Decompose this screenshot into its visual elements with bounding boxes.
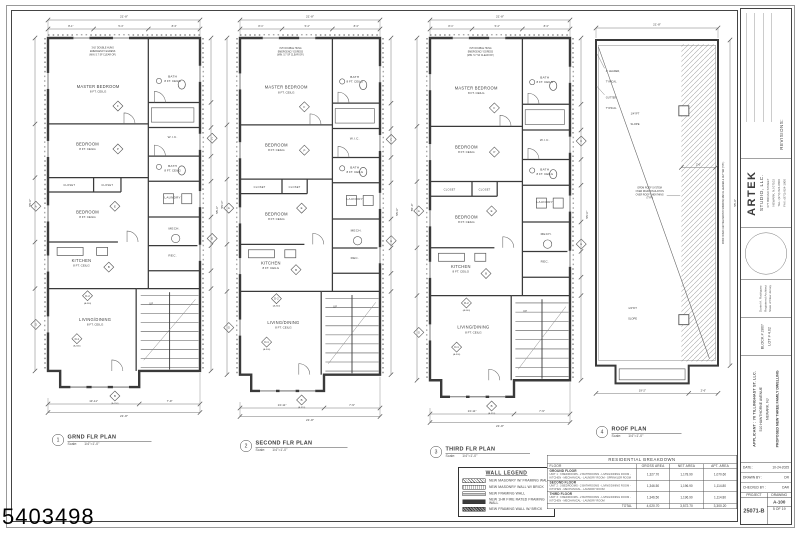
exterior-wall	[240, 38, 380, 391]
tag-letter: D-1	[454, 345, 459, 349]
dim-label: 13'-11"	[89, 399, 98, 403]
room-label: REC.	[541, 259, 549, 263]
room-label: BEDROOM	[265, 211, 288, 216]
egress-note: (MIN. 5.7 SF CLEAR OP.)	[467, 54, 494, 57]
room-label: BEDROOM	[76, 141, 99, 146]
room-label: BEDROOM	[455, 214, 478, 219]
dim-label: 55'-0"	[410, 203, 414, 211]
plan-title-grnd: 1 GRND FLR PLAN Scale:1/4"=1'-0"	[52, 434, 151, 446]
room-ceiling-note: 8 FT. CEILG	[73, 263, 90, 267]
tag-letter: P	[117, 147, 119, 151]
tag-letter: E	[390, 239, 392, 243]
leader-note: 4" LEADER,	[606, 69, 620, 73]
room-ceiling-note: 8 FT. CEILG	[537, 80, 554, 84]
tag-ref: (A-300)	[453, 353, 461, 356]
plan-number-badge: 3	[430, 446, 442, 458]
tag-letter: B	[295, 268, 297, 272]
dim-label: 5'-4"	[495, 24, 500, 28]
dim-label: 8'-1"	[448, 24, 453, 28]
room-label: BATH	[168, 164, 177, 168]
dim-label: 55'-0"	[395, 208, 399, 216]
firm-name-2: STUDIO, LLC.	[760, 175, 765, 212]
room-ceiling-note: 8 FT. CEILG	[458, 220, 475, 224]
tag-letter: B	[491, 404, 493, 408]
plan-number-badge: 4	[596, 426, 608, 438]
dim-label: 8'-3"	[172, 24, 177, 28]
egress-note: EMERGENCY EGRESS	[278, 51, 304, 53]
tag-letter: B	[108, 265, 110, 269]
plan-title-text: GRND FLR PLAN	[68, 434, 152, 442]
meta-label: CHECKED BY :	[743, 486, 766, 490]
plan-number-badge: 1	[52, 434, 64, 446]
tag-ref: (A-310)	[298, 406, 306, 409]
meta-label: DRAWN BY :	[743, 476, 762, 480]
room-ceiling-note: 8 FT. CEILG	[87, 322, 104, 326]
room-label: CLOSET	[254, 185, 266, 189]
room-label: MASTER BEDROOM	[455, 86, 498, 91]
dim-label: 21'-8"	[120, 414, 128, 418]
legend-item-label: NEW FRAMING WALL	[489, 492, 525, 496]
room-ceiling-note: 8 FT. CEILG	[468, 91, 485, 95]
room-label: LIVING/DINING	[79, 317, 111, 322]
legend-item: NEW MASONRY W/ FRAMING WALL	[463, 479, 551, 484]
firm-name: ARTEK	[745, 170, 758, 215]
applicant-address: 510 HAWTHORNE AVENUE	[759, 387, 763, 432]
roof-note: EPDM ROOF SYSTEM	[638, 188, 662, 190]
tag-letter: D-2	[85, 294, 90, 298]
dim-label: 8'-1"	[68, 24, 73, 28]
leader-note: TYPICAL	[606, 79, 617, 83]
dim-label: 19'-2"	[639, 388, 646, 392]
room-ceiling-note: 8 FT. CEILG	[164, 79, 181, 83]
tag-letter: D-2	[464, 301, 469, 305]
slope-label: SLOPE	[628, 317, 637, 321]
firm-phone: TEL: (973) 824-0800	[778, 179, 781, 207]
slope-label: 1/4"/FT	[628, 306, 637, 310]
firm-address: 677 BROAD STREET	[767, 178, 770, 207]
room-label: MECH.	[351, 229, 362, 233]
tag-letter: E	[491, 209, 493, 213]
plan-number-badge: 2	[240, 440, 252, 452]
drawing-number: A-100	[767, 498, 791, 507]
dim-label: 2'-6"	[701, 388, 707, 392]
wall-type-swatch	[463, 499, 486, 504]
tag-letter: A	[418, 209, 420, 213]
dim-label: 21'-8"	[496, 15, 504, 19]
room-label: REC.	[351, 256, 359, 260]
room-label: LAUNDRY	[537, 200, 553, 204]
tag-letter: P	[303, 148, 305, 152]
dim-label: 7'-9"	[539, 409, 545, 413]
room-label: W.I.C.	[168, 135, 178, 139]
area-value: 1,327.70	[636, 469, 670, 481]
dim-label: 21'-8"	[496, 424, 504, 428]
wall-type-swatch	[463, 507, 486, 512]
plan-scale: Scale:1/4"=1'-0"	[68, 443, 152, 447]
room-ceiling-note: 8 FT. CEILG	[90, 90, 107, 94]
room-label: MASTER BEDROOM	[265, 85, 308, 90]
dim-label: 21'-8"	[653, 23, 661, 27]
room-label: LIVING/DINING	[267, 320, 299, 325]
architect-title: Registered Architect	[764, 285, 767, 312]
table-title: RESIDENTIAL BREAKDOWN	[547, 455, 737, 464]
dim-label: 13'-11"	[278, 403, 287, 407]
meta-row: DRAWN BY :DR	[741, 473, 791, 483]
third-floor-plan-drawing: FPEBAGCED-2(A-300)D-1(A-300)B(A-310)MAST…	[400, 12, 586, 446]
roof-side-note: ROOF OVER CANTILEVER BAY WINDOW, METAL L…	[722, 162, 725, 244]
applicant-city: NEWARK, NJ	[766, 398, 770, 419]
total-label: TOTAL	[547, 504, 636, 509]
legend-item-label: NEW FRAMING WALL W/ BRICK	[489, 508, 542, 512]
plan-title-text: THIRD FLR PLAN	[446, 446, 531, 454]
plan-scale: Scale:1/4"=1'-0"	[612, 435, 682, 439]
wall-legend-box: WALL LEGEND NEW MASONRY W/ FRAMING WALLN…	[458, 467, 555, 517]
room-label: UP	[149, 302, 153, 306]
tag-letter: G	[228, 326, 230, 330]
architect-state: State of New Jersey	[769, 285, 772, 312]
room-label: UP	[333, 305, 337, 309]
legend-rows: NEW MASONRY W/ FRAMING WALLNEW MASONRY W…	[463, 479, 551, 512]
plan-scale: Scale:1/4"=1'-0"	[446, 455, 531, 459]
ground-floor-plan-drawing: FPEBAGCED-2(A-300)D-1(A-300)B(A-310)MAST…	[18, 12, 216, 436]
roof-hatch-strip	[681, 44, 715, 361]
total-gross: 4,020.70	[636, 504, 670, 509]
total-net: 3,572.70	[670, 504, 704, 509]
meta-value: 10-24-2025	[772, 466, 789, 470]
project-description: PROPOSED NEW THREE FAMILY DWELLING	[775, 371, 779, 448]
roof-note: (TYP.)	[646, 198, 653, 200]
room-ceiling-note: 8 FT. CEILG	[275, 326, 292, 330]
tag-letter: F	[494, 106, 496, 110]
block-number: BLOCK # 2807	[760, 324, 764, 349]
area-value: 1,114.80	[703, 480, 737, 492]
dim-label: 21'-8"	[306, 15, 314, 19]
room-label: LAUNDRY	[164, 195, 180, 199]
tag-letter: D-2	[274, 297, 279, 301]
area-value: 1,114.80	[703, 492, 737, 504]
dim-label: 55'-0"	[28, 199, 32, 207]
exterior-wall	[48, 38, 200, 387]
meta-value: DAR	[782, 486, 789, 490]
legend-item: NEW MASONRY WALL W/ BRICK	[463, 485, 551, 490]
room-ceiling-note: 8 FT. CEILG	[263, 266, 280, 270]
legend-item-label: NEW MASONRY W/ FRAMING WALL	[489, 479, 549, 483]
egress-note: (MIN. 5.7 SF CLEAR OP.)	[277, 54, 304, 57]
plan-title-third: 3 THIRD FLR PLAN Scale:1/4"=1'-0"	[430, 446, 530, 458]
meta-row: CHECKED BY :DAR	[741, 483, 791, 493]
room-label: BATH	[540, 75, 549, 79]
floor-description: UNIT 3 : 3 BEDROOMS - 2 BATHROOMS - LIVI…	[550, 496, 635, 503]
total-row: TOTAL4,020.703,572.703,300.20	[547, 504, 737, 509]
room-ceiling-note: 8 FT. CEILG	[79, 215, 96, 219]
table-row: THIRD FLOORUNIT 3 : 3 BEDROOMS - 2 BATHR…	[547, 492, 737, 504]
tag-ref: (A-300)	[463, 309, 471, 312]
room-label: CLOSET	[289, 185, 301, 189]
room-label: BEDROOM	[265, 143, 288, 148]
legend-item: NEW FRAMING WALL	[463, 492, 551, 497]
architect-seal-circle	[745, 233, 787, 275]
tag-letter: D-1	[75, 337, 80, 341]
roof-note: OVER ROOF SHEATHING	[636, 193, 664, 196]
revisions-section: REVISIONS:	[741, 9, 791, 158]
second-floor-plan-drawing: FPEBAGCED-2(A-300)D-1(A-300)B(A-310)MAST…	[210, 12, 396, 440]
legend-item-label: NEW 1HR FIRE RATED FRAMING WALL	[489, 498, 551, 505]
revisions-label: REVISIONS:	[779, 119, 784, 150]
room-ceiling-note: 8 FT. CEILG	[465, 330, 482, 334]
tag-letter: F	[304, 105, 306, 109]
wall-type-swatch	[463, 485, 486, 490]
mls-watermark: 5403498	[2, 504, 95, 530]
area-value: 1,196.90	[670, 492, 704, 504]
room-label: BATH	[540, 167, 549, 171]
room-ceiling-note: 8 FT. CEILG	[347, 170, 364, 174]
area-value: 1,346.50	[636, 480, 670, 492]
room-label: CLOSET	[101, 183, 113, 187]
project-drawing-section: PROJECT 25071-B DRAWING A-100 5 OF 19	[741, 493, 791, 524]
room-label: UP	[523, 309, 527, 313]
dim-label: 5'-4"	[305, 24, 310, 28]
firm-fax: FAX: (973) 824-1900	[784, 179, 787, 207]
room-label: CLOSET	[63, 183, 75, 187]
room-label: BEDROOM	[455, 144, 478, 149]
plan-title-text: SECOND FLR PLAN	[256, 440, 348, 448]
gutter-note: TYPICAL	[606, 106, 617, 110]
legend-item: NEW 1HR FIRE RATED FRAMING WALL	[463, 498, 551, 505]
wall-type-swatch	[463, 479, 486, 484]
project-number: 25071-B	[741, 498, 767, 524]
firm-section: ARTEK STUDIO, LLC. 677 BROAD STREET NEWA…	[741, 158, 791, 228]
sheet-count: 5 OF 19	[767, 507, 791, 513]
dim-label: 13'-11"	[468, 409, 477, 413]
block-lot-section: BLOCK # 2807 LOT # 4.02	[741, 318, 791, 356]
total-apt: 3,300.20	[703, 504, 737, 509]
plan-scale: Scale:1/4"=1'-0"	[256, 449, 348, 453]
dim-label: 21'-8"	[306, 418, 314, 422]
room-label: MASTER BEDROOM	[77, 84, 120, 89]
room-ceiling-note: 8 FT. CEILG	[164, 168, 181, 172]
tag-letter: A	[228, 206, 230, 210]
dim-label: 5'-4"	[118, 24, 123, 28]
room-ceiling-note: 8 FT. CEILG	[268, 148, 285, 152]
table-body: GROUND FLOORUNIT 1 : 3 BEDROOMS - 2 BATH…	[547, 469, 737, 509]
table-row: GROUND FLOORUNIT 1 : 3 BEDROOMS - 2 BATH…	[547, 469, 737, 481]
title-block: REVISIONS: ARTEK STUDIO, LLC. 677 BROAD …	[740, 8, 792, 525]
room-label: BATH	[350, 75, 359, 79]
room-label: BATH	[350, 165, 359, 169]
room-ceiling-note: 8 FT. CEILG	[347, 79, 364, 83]
plan-title-roof: 4 ROOF PLAN Scale:1/4"=1'-0"	[596, 426, 682, 438]
tag-ref: (A-310)	[488, 412, 496, 415]
room-label: KITCHEN	[451, 264, 471, 269]
room-label: CLOSET	[479, 187, 491, 191]
tag-letter: E	[580, 242, 582, 246]
firm-address: NEWARK, NJ 07102	[773, 179, 776, 207]
tag-letter: E	[114, 204, 116, 208]
room-ceiling-note: 8 FT. CEILG	[268, 217, 285, 221]
room-label: REC.	[168, 253, 176, 257]
room-label: LAUNDRY	[347, 197, 363, 201]
dim-label: 7'-9"	[349, 403, 355, 407]
revision-table-lines	[746, 13, 773, 122]
dim-label: 7'-9"	[167, 399, 173, 403]
floor-description: UNIT 1 : 3 BEDROOMS - 2 BATHROOMS - LIVI…	[550, 473, 635, 480]
room-label: KITCHEN	[261, 260, 281, 265]
architect-name: Daniel A. Rodriguez	[759, 285, 762, 312]
floor-description: UNIT 2 : 3 BEDROOMS - 2 BATHROOMS - LIVI…	[550, 485, 635, 492]
dim-label: 8'-3"	[544, 24, 549, 28]
room-label: CLOSET	[444, 187, 456, 191]
plan-title-second: 2 SECOND FLR PLAN Scale:1/4"=1'-0"	[240, 440, 347, 452]
egress-note: EMERGENCY EGRESS	[90, 51, 116, 53]
tag-letter: B	[301, 398, 303, 402]
room-ceiling-note: 8 FT. CEILG	[278, 90, 295, 94]
seal-section	[741, 228, 791, 280]
architect-section: Daniel A. Rodriguez Registered Architect…	[741, 280, 791, 318]
egress-note: (MIN. 5.7 SF CLEAR OP.)	[89, 54, 116, 57]
room-label: BEDROOM	[76, 209, 99, 214]
roof-drain	[679, 315, 689, 325]
egress-note: 3'x5' DOUBLE HUNG	[469, 48, 492, 50]
room-ceiling-note: 8 FT. CEILG	[79, 147, 96, 151]
wall-type-swatch	[463, 492, 486, 497]
area-value: 1,070.60	[703, 469, 737, 481]
room-ceiling-note: 8 FT. CEILG	[458, 150, 475, 154]
egress-note: 3'x5' DOUBLE HUNG	[279, 48, 302, 50]
gutter-note: GUTTER,	[606, 95, 618, 99]
applicant-section: APPLICANT : 70 TILLINGHAST ST. LLC. 510 …	[741, 356, 791, 464]
room-label: MECH.	[169, 227, 180, 231]
legend-item-label: NEW MASONRY WALL W/ BRICK	[489, 486, 544, 490]
roof-plan-drawing: 4" LEADER,TYPICALGUTTER,TYPICAL1/4"/FTSL…	[584, 14, 740, 420]
dim-label: 55'-0"	[733, 199, 737, 207]
slope-label: SLOPE	[631, 122, 640, 126]
tag-letter: P	[493, 150, 495, 154]
dim-label: 2'-6"	[696, 163, 701, 166]
meta-row: DATE :10-24-2025	[741, 463, 791, 473]
room-label: W.I.C.	[540, 138, 550, 142]
tag-letter: B	[114, 394, 116, 398]
dim-label: 8'-1"	[258, 24, 263, 28]
roof-drain	[679, 106, 689, 116]
meta-value: DR	[784, 476, 789, 480]
roof-note: OVER RIGID INSULATION	[636, 190, 664, 193]
tag-letter: D-1	[264, 340, 269, 344]
tag-ref: (A-310)	[111, 402, 119, 405]
tag-ref: (A-300)	[84, 302, 92, 305]
area-value: 1,178.90	[670, 469, 704, 481]
dim-label: 55'-0"	[220, 201, 224, 209]
room-label: KITCHEN	[72, 258, 92, 263]
room-ceiling-note: 8 FT. CEILG	[537, 172, 554, 176]
legend-title: WALL LEGEND	[463, 471, 551, 477]
meta-label: DATE :	[743, 466, 753, 470]
room-label: MECH.	[541, 232, 552, 236]
area-value: 1,346.50	[636, 492, 670, 504]
tag-letter: G	[418, 331, 420, 335]
room-label: LIVING/DINING	[457, 325, 489, 330]
tag-ref: (A-300)	[263, 348, 271, 351]
tag-letter: E	[301, 206, 303, 210]
dim-label: 21'-8"	[120, 15, 128, 19]
applicant-name: APPLICANT : 70 TILLINGHAST ST. LLC.	[753, 371, 757, 447]
plan-title-text: ROOF PLAN	[612, 426, 682, 434]
room-label: BATH	[168, 74, 177, 78]
tag-letter: B	[485, 272, 487, 276]
blueprint-sheet: FPEBAGCED-2(A-300)D-1(A-300)B(A-310)MAST…	[0, 0, 800, 533]
dim-label: 8'-3"	[354, 24, 359, 28]
legend-item: NEW FRAMING WALL W/ BRICK	[463, 507, 551, 512]
tag-ref: (A-300)	[273, 305, 281, 308]
slope-label: 1/4"/FT	[631, 111, 640, 115]
exterior-wall	[430, 38, 570, 397]
lot-number: LOT # 4.02	[767, 327, 771, 346]
residential-breakdown: RESIDENTIAL BREAKDOWN FLOORGROSS AREANET…	[547, 455, 737, 509]
egress-note: EMERGENCY EGRESS	[468, 51, 494, 53]
area-value: 1,196.90	[670, 480, 704, 492]
meta-section: DATE :10-24-2025DRAWN BY :DRCHECKED BY :…	[741, 463, 791, 493]
tag-letter: F	[117, 104, 119, 108]
egress-note: 3'x5' DOUBLE HUNG	[92, 48, 115, 50]
room-label: W.I.C.	[350, 136, 360, 140]
table-row: SECOND FLOORUNIT 2 : 3 BEDROOMS - 2 BATH…	[547, 480, 737, 492]
room-ceiling-note: 8 FT. CEILG	[453, 270, 470, 274]
tag-ref: (A-300)	[73, 345, 81, 348]
